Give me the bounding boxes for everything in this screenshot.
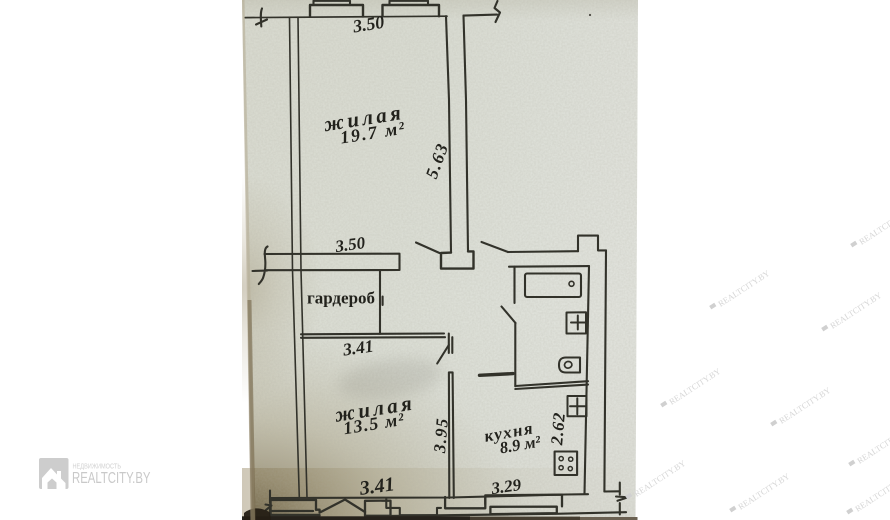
svg-text:REALTCITY.BY: REALTCITY.BY xyxy=(632,458,687,499)
svg-text:REALTCITY.BY: REALTCITY.BY xyxy=(777,385,832,426)
svg-text:REALTCITY.BY: REALTCITY.BY xyxy=(667,366,722,407)
svg-text:гардероб: гардероб xyxy=(307,289,375,308)
svg-text:REALTCITY.BY: REALTCITY.BY xyxy=(853,473,890,514)
svg-text:2.62: 2.62 xyxy=(547,411,569,446)
svg-text:REALTCITY.BY: REALTCITY.BY xyxy=(72,470,151,487)
svg-text:REALTCITY.BY: REALTCITY.BY xyxy=(855,425,890,466)
svg-text:REALTCITY.BY: REALTCITY.BY xyxy=(857,206,890,247)
svg-text:REALTCITY.BY: REALTCITY.BY xyxy=(716,268,771,309)
svg-text:REALTCITY.BY: REALTCITY.BY xyxy=(828,290,883,331)
svg-text:REALTCITY.BY: REALTCITY.BY xyxy=(736,471,791,512)
svg-text:3.95: 3.95 xyxy=(430,416,452,454)
